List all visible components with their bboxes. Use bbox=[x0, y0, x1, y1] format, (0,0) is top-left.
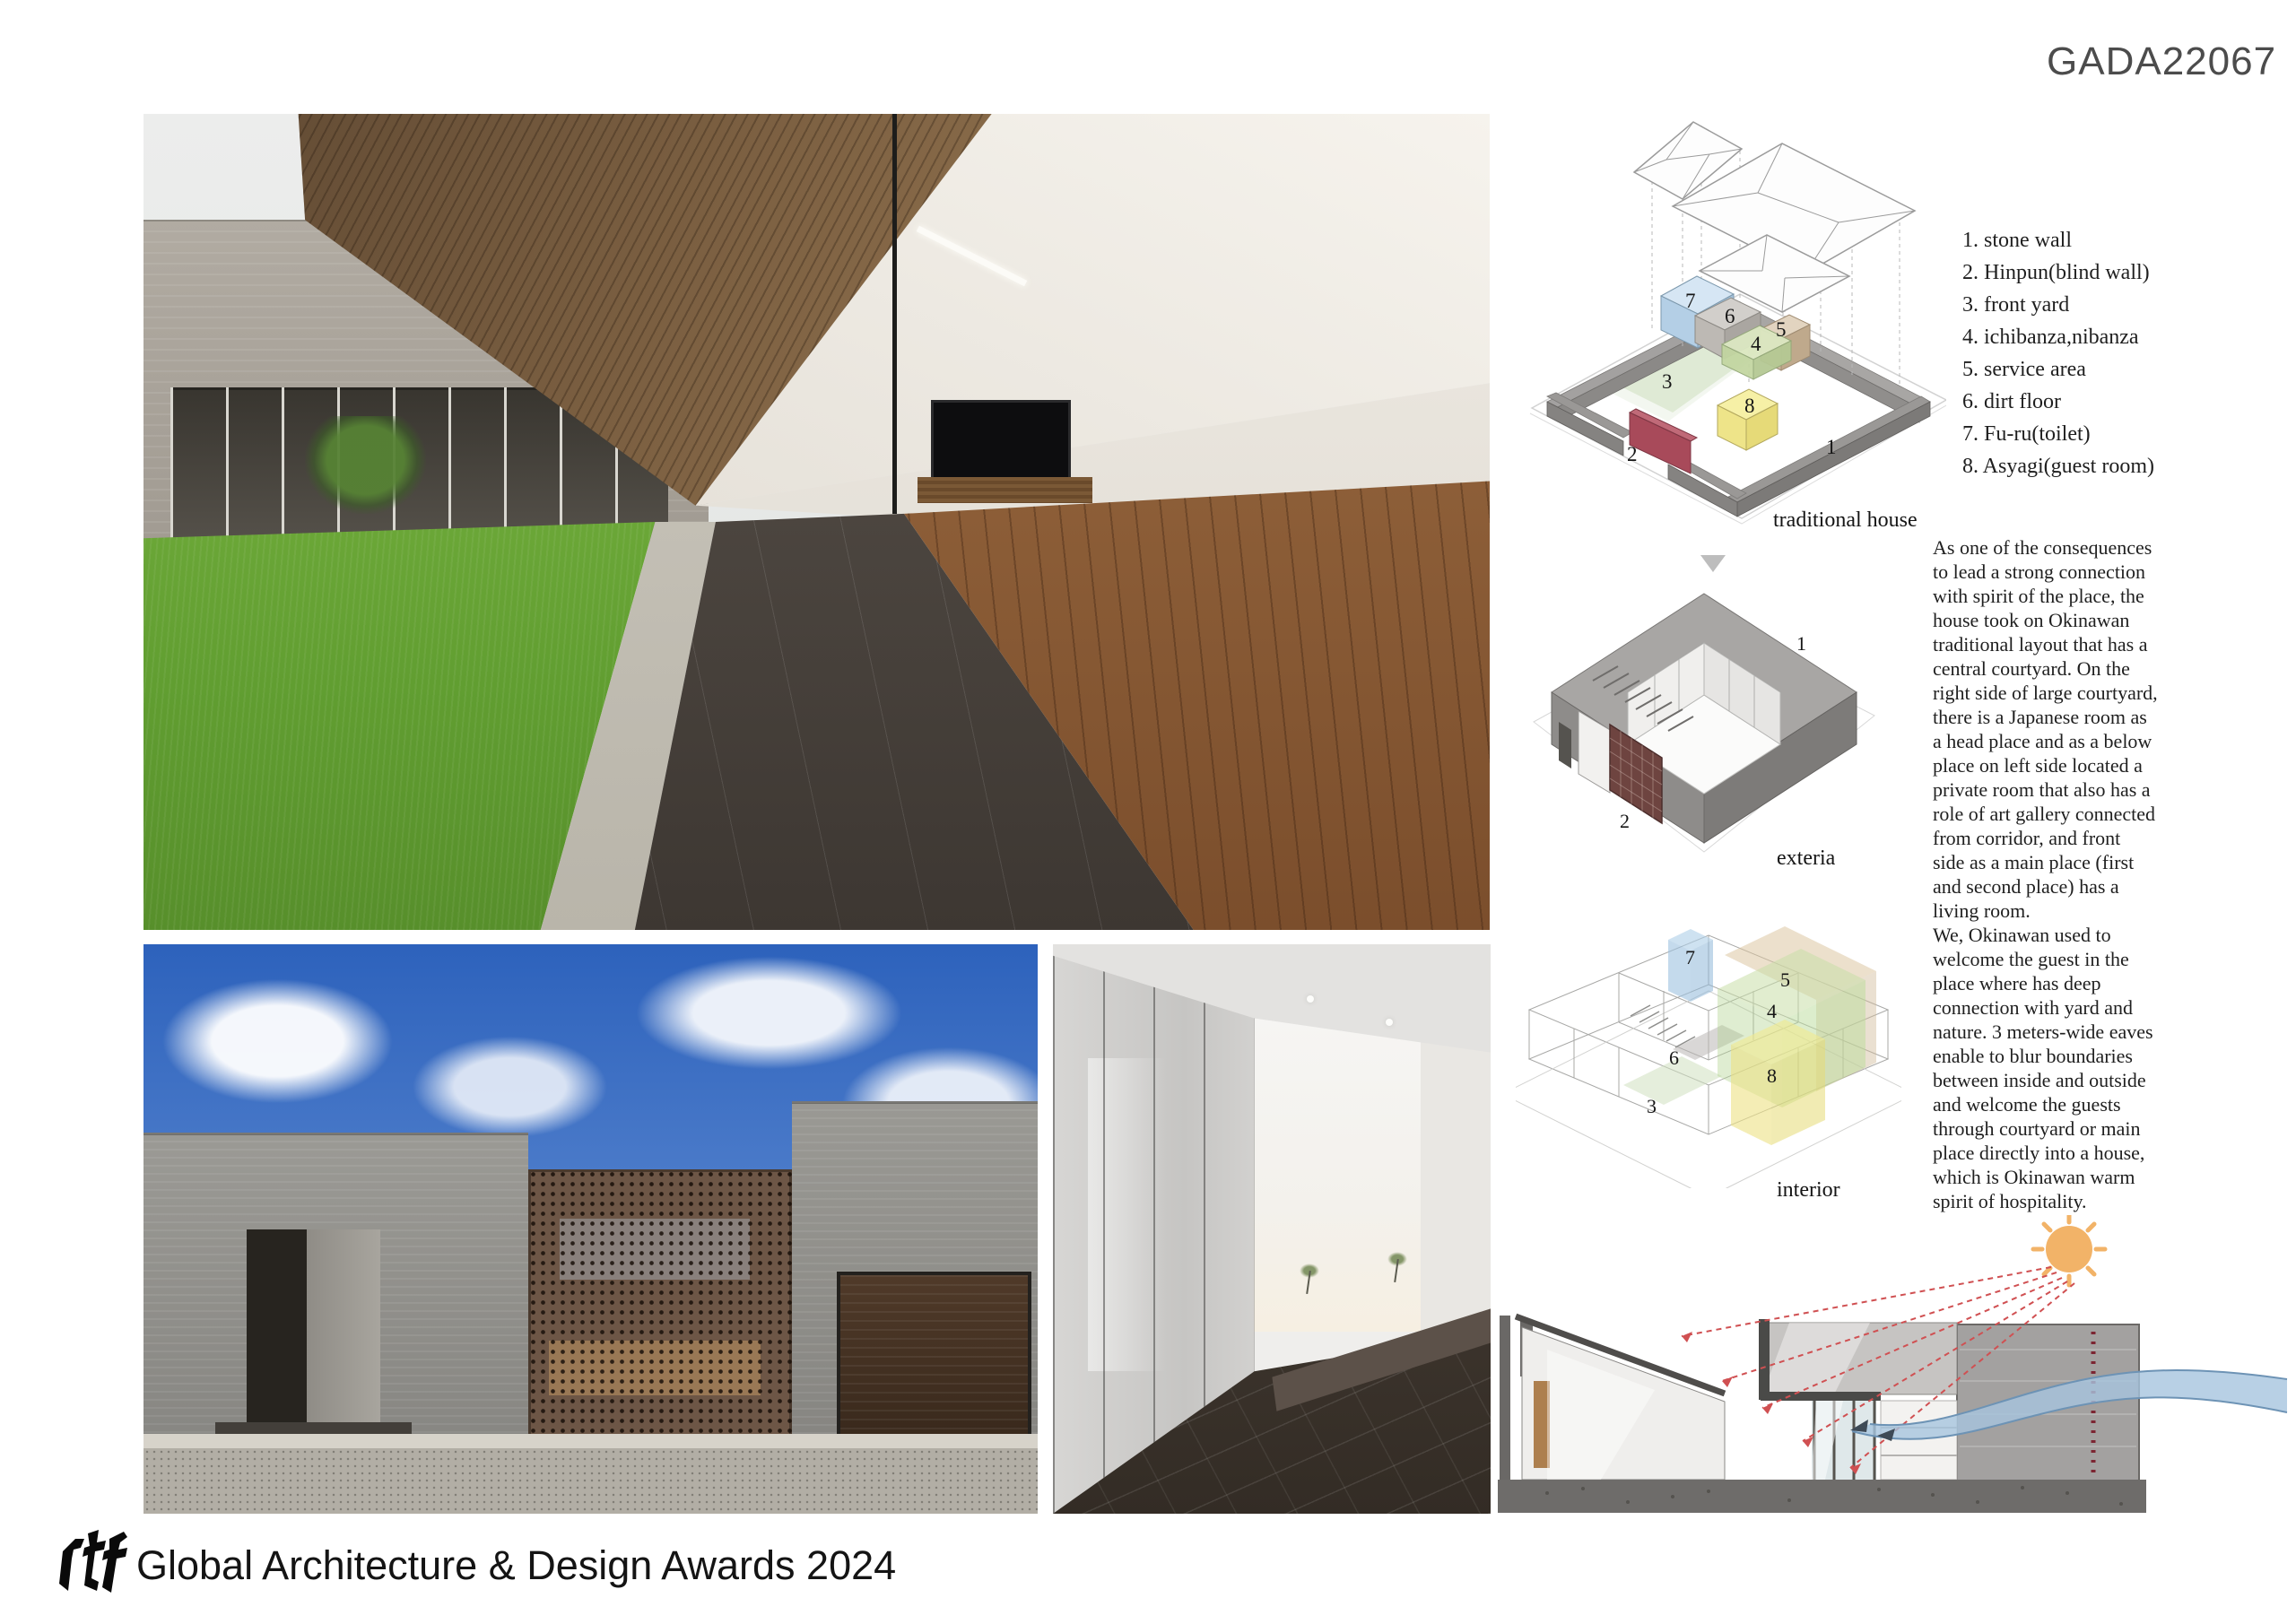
label-5: 5 bbox=[1780, 968, 1790, 991]
exploded-roofs bbox=[1634, 122, 1915, 312]
label-2: 2 bbox=[1627, 443, 1638, 465]
label-7: 7 bbox=[1685, 290, 1696, 312]
label-6: 6 bbox=[1669, 1046, 1679, 1069]
label-3: 3 bbox=[1647, 1095, 1657, 1117]
gravel-road bbox=[143, 1448, 1038, 1514]
award-title: Global Architecture & Design Awards 2024 bbox=[136, 1542, 896, 1589]
perforated-brick-screen bbox=[528, 1169, 792, 1446]
diagram-section-climate bbox=[1493, 1215, 2296, 1524]
project-description: As one of the consequences to lead a str… bbox=[1933, 535, 2211, 1213]
asyagi-zone bbox=[1731, 1020, 1825, 1145]
cloud bbox=[635, 956, 903, 1070]
label-6: 6 bbox=[1725, 305, 1735, 327]
label-1: 1 bbox=[1826, 436, 1837, 458]
label-5: 5 bbox=[1776, 318, 1787, 341]
legend-list: 1. stone wall 2. Hinpun(blind wall) 3. f… bbox=[1962, 224, 2154, 482]
project-code: GADA22067 bbox=[2047, 39, 2276, 84]
label-8: 8 bbox=[1767, 1064, 1777, 1087]
rtf-logo bbox=[57, 1528, 129, 1596]
label-7: 7 bbox=[1685, 946, 1695, 968]
down-arrow-icon bbox=[1700, 555, 1726, 572]
caption-interior: interior bbox=[1777, 1178, 1840, 1203]
side-wall bbox=[1421, 1002, 1491, 1343]
branch-vase bbox=[1298, 1264, 1321, 1301]
label-1: 1 bbox=[1796, 632, 1806, 655]
rtf-logo-glyphs bbox=[59, 1530, 127, 1593]
label-2: 2 bbox=[1620, 810, 1630, 832]
diagram-exteria: 1 2 bbox=[1525, 587, 1883, 856]
gravel-texture bbox=[143, 1448, 1038, 1514]
potted-plant bbox=[305, 416, 426, 514]
side-door bbox=[1559, 722, 1571, 769]
ground-section bbox=[1498, 1480, 2146, 1513]
legend-item: 2. Hinpun(blind wall) bbox=[1962, 256, 2154, 289]
legend-item: 5. service area bbox=[1962, 353, 2154, 386]
label-4: 4 bbox=[1751, 333, 1761, 355]
photo-facade bbox=[143, 944, 1038, 1514]
legend-item: 6. dirt floor bbox=[1962, 386, 2154, 418]
television bbox=[931, 400, 1071, 482]
label-8: 8 bbox=[1744, 395, 1755, 417]
entry-recess bbox=[247, 1229, 381, 1446]
brick-perforations bbox=[528, 1169, 792, 1446]
garage-door bbox=[837, 1272, 1031, 1441]
left-house-section bbox=[1500, 1316, 1725, 1480]
caption-traditional-house: traditional house bbox=[1773, 508, 1918, 533]
legend-item: 4. ichibanza,nibanza bbox=[1962, 321, 2154, 353]
legend-item: 7. Fu-ru(toilet) bbox=[1962, 418, 2154, 450]
sliding-door-frame bbox=[892, 114, 897, 514]
downlight bbox=[1386, 1019, 1393, 1026]
photo-hallway bbox=[1053, 944, 1491, 1514]
tv-cabinet bbox=[918, 477, 1092, 503]
caption-exteria: exteria bbox=[1777, 847, 1835, 871]
presentation-board: GADA22067 bbox=[0, 0, 2296, 1624]
photo-courtyard bbox=[143, 114, 1490, 930]
sun-icon bbox=[2033, 1215, 2105, 1285]
garage-wood-lines bbox=[840, 1275, 1028, 1437]
diagram-traditional-house: 1 2 3 4 5 6 7 8 bbox=[1516, 117, 1946, 538]
label-4: 4 bbox=[1767, 1000, 1777, 1022]
branch-vase bbox=[1386, 1252, 1409, 1290]
legend-item: 8. Asyagi(guest room) bbox=[1962, 450, 2154, 482]
legend-item: 1. stone wall bbox=[1962, 224, 2154, 256]
label-3: 3 bbox=[1662, 370, 1673, 393]
middle-pavilion bbox=[1759, 1319, 1957, 1480]
entry-inner-wall bbox=[307, 1229, 380, 1446]
cloud bbox=[161, 978, 394, 1104]
diagram-interior: 3 4 5 6 7 8 bbox=[1516, 919, 1901, 1188]
legend-item: 3. front yard bbox=[1962, 289, 2154, 321]
cloud bbox=[412, 1036, 608, 1138]
